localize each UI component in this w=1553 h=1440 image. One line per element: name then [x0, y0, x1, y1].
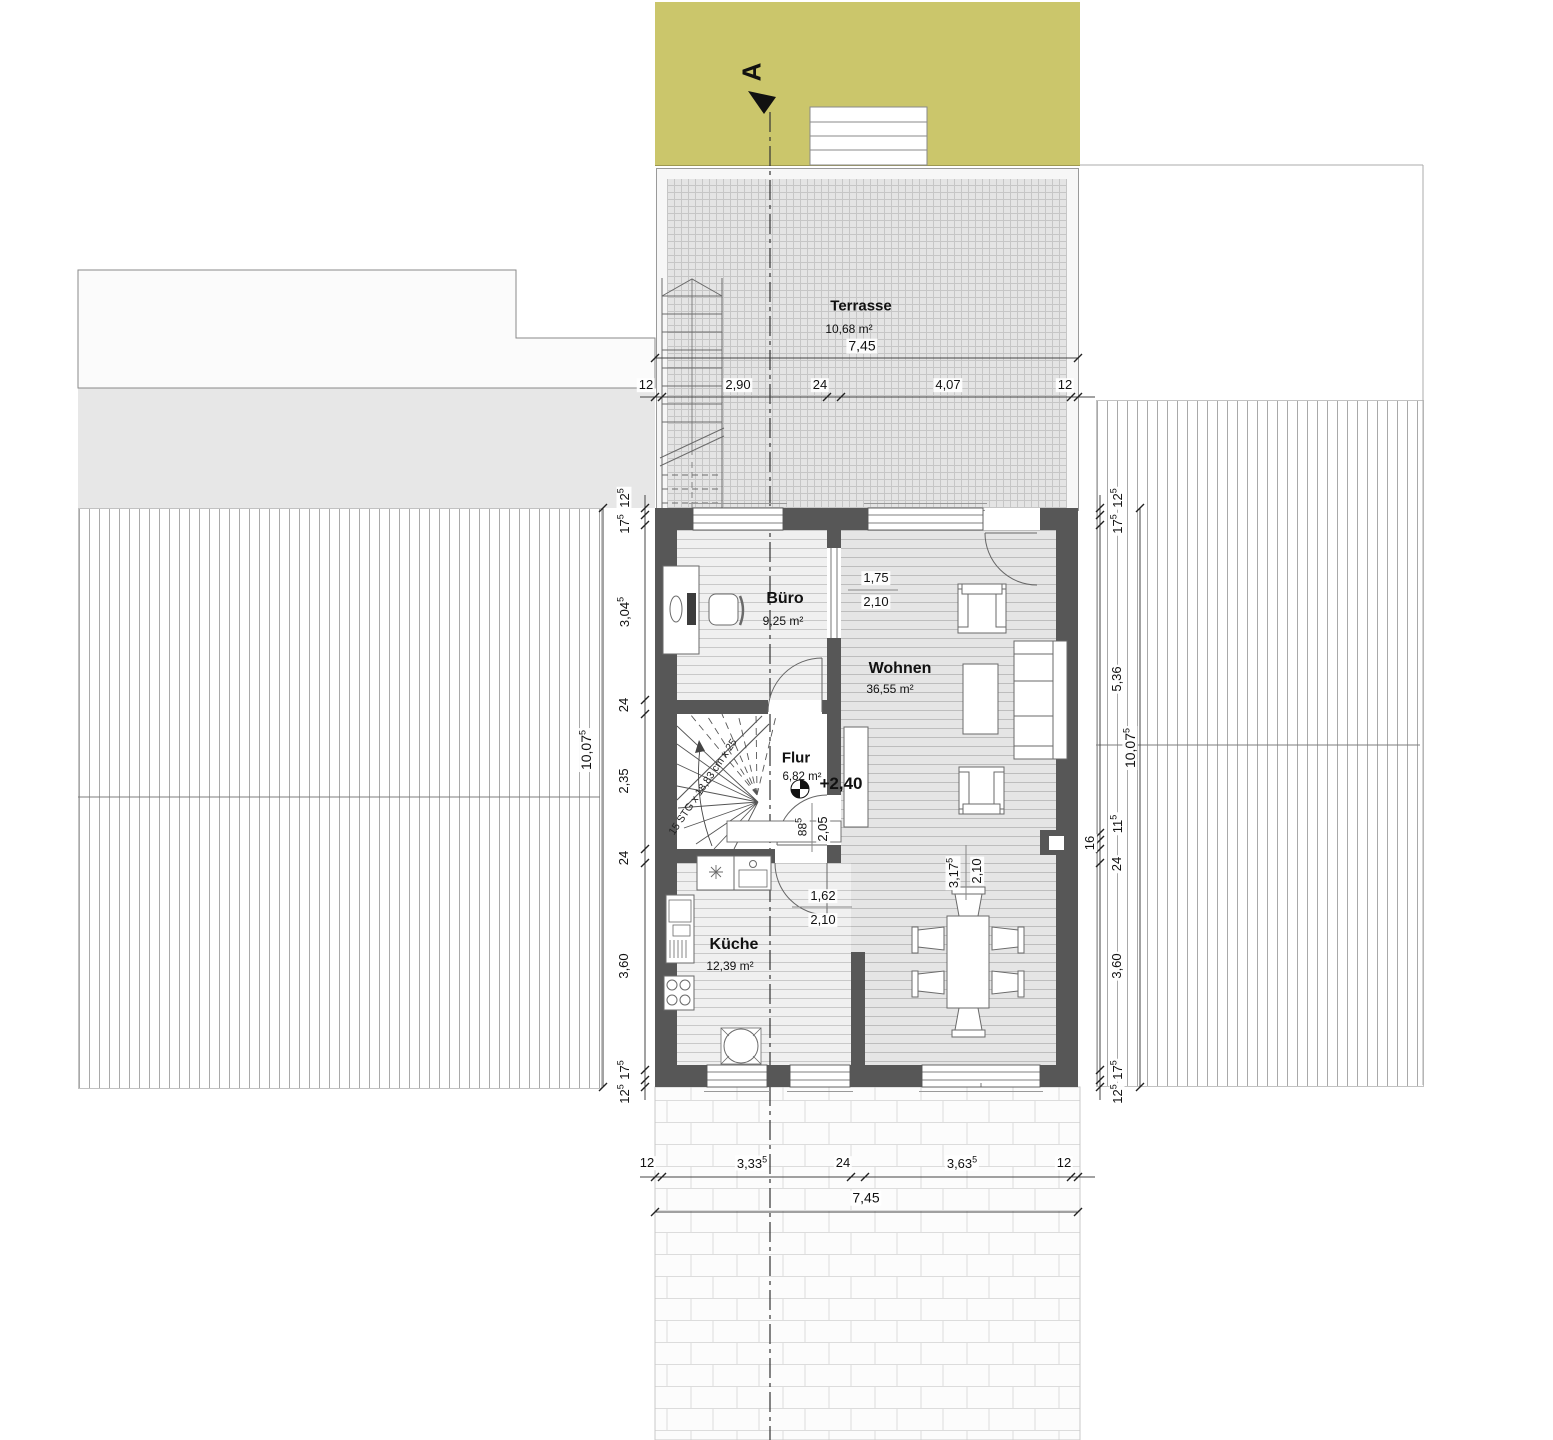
section-arrow-icon	[748, 91, 776, 114]
dim-left: 175	[617, 1058, 632, 1081]
dim-right: 175	[1110, 1058, 1125, 1081]
dim-bottom: 12	[1055, 1156, 1073, 1170]
room-label-flur: Flur	[782, 750, 810, 767]
dim-top: 4,07	[933, 378, 962, 392]
dim-bottom-total: 7,45	[850, 1191, 881, 1206]
dim-top: 2,90	[723, 378, 752, 392]
room-area-flur: 6,82 m²	[783, 771, 822, 783]
dim-left: 125	[617, 1082, 632, 1105]
dim-left-total: 10,075	[578, 728, 593, 772]
brick-area	[655, 1087, 1080, 1440]
dim-opening: 3,175	[946, 856, 961, 890]
dim-left: 3,60	[617, 951, 631, 980]
column-core	[1049, 836, 1064, 850]
dim-opening: 2,05	[816, 814, 830, 843]
room-label-kueche: Küche	[710, 936, 759, 954]
dim-right: 125	[1110, 1082, 1125, 1105]
room-area-kueche: 12,39 m²	[706, 959, 753, 973]
dim-opening: 2,10	[861, 595, 890, 609]
dim-left: 2,35	[617, 766, 631, 795]
section-label: A	[737, 63, 768, 82]
room-label-terrasse: Terrasse	[830, 298, 891, 315]
dim-right: 3,60	[1110, 951, 1124, 980]
dim-bottom: 3,335	[735, 1156, 769, 1171]
entry-steps	[810, 107, 927, 165]
room-label-wohnen: Wohnen	[869, 660, 932, 678]
dim-bottom: 12	[638, 1156, 656, 1170]
dim-left: 3,045	[617, 595, 632, 629]
dim-top: 24	[811, 378, 829, 392]
dim-bottom: 24	[834, 1156, 852, 1170]
dim-opening: 885	[795, 816, 810, 838]
dim-right: 115	[1110, 813, 1125, 836]
floor-plan-canvas: A Terrasse 10,68 m² Büro 9,25 m² Wohnen …	[0, 0, 1553, 1440]
dim-top: 12	[637, 378, 655, 392]
room-area-terrasse: 10,68 m²	[825, 322, 872, 336]
dim-opening: 2,10	[970, 856, 984, 885]
plan-drawing	[0, 0, 1553, 1440]
dim-top: 12	[1056, 378, 1074, 392]
dim-opening: 1,75	[861, 571, 890, 585]
dim-bottom: 3,635	[945, 1156, 979, 1171]
dim-left: 24	[617, 696, 631, 714]
dim-left: 125	[617, 486, 632, 509]
dim-left: 24	[617, 849, 631, 867]
dim-right-total: 10,075	[1122, 726, 1137, 770]
dim-left: 175	[617, 512, 632, 535]
room-area-wohnen: 36,55 m²	[866, 682, 913, 696]
dim-right: 5,36	[1110, 664, 1124, 693]
room-label-buero: Büro	[766, 590, 803, 608]
dim-right: 125	[1110, 486, 1125, 509]
dim-right: 16	[1083, 834, 1097, 852]
dim-top-total: 7,45	[846, 339, 877, 354]
dim-right: 175	[1110, 512, 1125, 535]
terrace-stair	[660, 278, 724, 512]
room-area-buero: 9,25 m²	[763, 614, 804, 628]
level-label: +2,40	[819, 774, 862, 794]
dim-right: 24	[1110, 855, 1124, 873]
dim-opening: 1,62	[808, 889, 837, 903]
dim-opening: 2,10	[808, 913, 837, 927]
